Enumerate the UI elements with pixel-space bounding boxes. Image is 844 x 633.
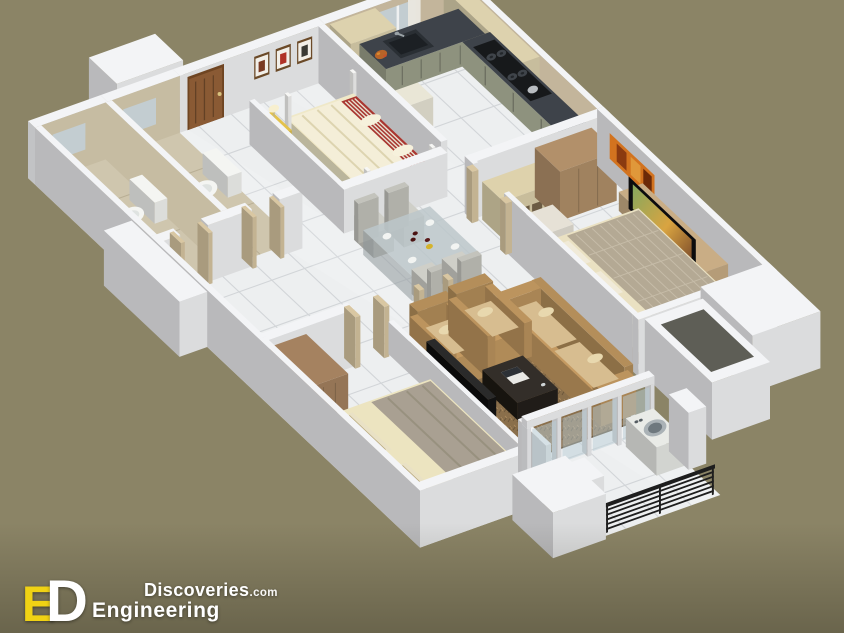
- wardrobe-door-line: [597, 162, 598, 206]
- bathroom1-north-wall: [28, 121, 35, 185]
- floorplan-3d-render: [0, 0, 844, 633]
- brand-monogram: E D: [22, 565, 100, 625]
- bedroom2-south-wall: [633, 315, 639, 377]
- door-frame-post: [500, 198, 506, 255]
- cabinet-door-line: [460, 45, 461, 64]
- glass-door-frame: [618, 395, 622, 446]
- entry-door-groove: [195, 81, 196, 123]
- exterior-ledge-west: [180, 292, 208, 357]
- brand-engineering-text: Engineering: [92, 599, 278, 623]
- glass-door-panel: [563, 410, 587, 462]
- wardrobe-door-line: [578, 169, 579, 213]
- brand-line-discoveries: Discoveries.com: [144, 580, 278, 601]
- brand-tld-text: .com: [249, 587, 277, 599]
- door-knob: [218, 92, 222, 96]
- brand-words: Discoveries.com Engineering: [92, 580, 278, 625]
- door-frame-post: [373, 297, 384, 359]
- entry-door-groove: [213, 75, 214, 117]
- bedroom3-south-wall: [413, 484, 420, 548]
- brand-monogram-d: D: [46, 573, 88, 631]
- dining-chair-back: [354, 200, 358, 244]
- door-frame-post: [467, 167, 473, 224]
- door-frame-post: [242, 207, 253, 269]
- door-frame-post: [472, 170, 478, 224]
- balcony-pillar: [689, 407, 707, 470]
- cabinet-door-line: [421, 59, 422, 78]
- glass-door-panel: [593, 399, 617, 451]
- bedroom1-south-wall: [337, 183, 344, 233]
- cabinet-door-line: [485, 66, 486, 86]
- brand-watermark: E D Discoveries.com Engineering: [22, 565, 278, 625]
- door-frame-post: [344, 307, 355, 369]
- armchair-arm: [524, 321, 532, 360]
- door-frame-post: [209, 232, 213, 285]
- cabinet-door-line: [440, 53, 441, 72]
- door-frame-post: [269, 197, 280, 259]
- cabinet-door-line: [513, 92, 514, 112]
- brand-discoveries-text: Discoveries: [144, 580, 249, 600]
- door-frame-post: [253, 216, 257, 269]
- door-frame-post: [506, 201, 512, 255]
- door-frame-post: [355, 316, 360, 369]
- glass-door-frame: [588, 406, 592, 457]
- door-frame-post: [281, 206, 285, 259]
- floorplan-stage: E D Discoveries.com Engineering: [0, 0, 844, 633]
- entry-door-groove: [204, 78, 205, 120]
- cabinet-door-line: [402, 66, 403, 85]
